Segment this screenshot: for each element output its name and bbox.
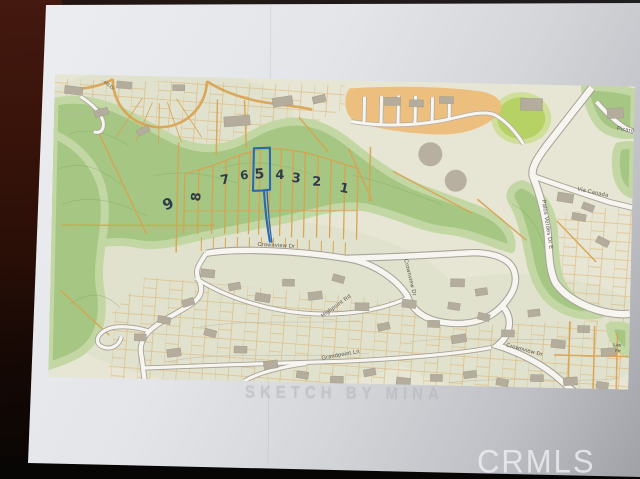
crmls-watermark: CRMLS xyxy=(477,443,596,479)
lot-number-3: 3 xyxy=(291,171,302,187)
lot-number-5: 5 xyxy=(254,166,265,183)
lot-number-6: 6 xyxy=(239,168,249,183)
lot-number-4: 4 xyxy=(275,168,284,183)
parcel-map: Crownview Dr Crownview Dr Crownview Dr H… xyxy=(48,74,634,390)
photo-of-parcel-map: Crownview Dr Crownview Dr Crownview Dr H… xyxy=(0,0,640,479)
street-label-partial-right-1: Las xyxy=(613,342,621,347)
lot-number-8: 8 xyxy=(189,192,205,203)
map-image: Crownview Dr Crownview Dr Crownview Dr H… xyxy=(48,74,634,390)
street-label-partial-right-2: Fir xyxy=(615,348,621,353)
lot-number-2: 2 xyxy=(312,175,321,190)
pencil-note: SKETCH BY MINA xyxy=(245,383,475,405)
